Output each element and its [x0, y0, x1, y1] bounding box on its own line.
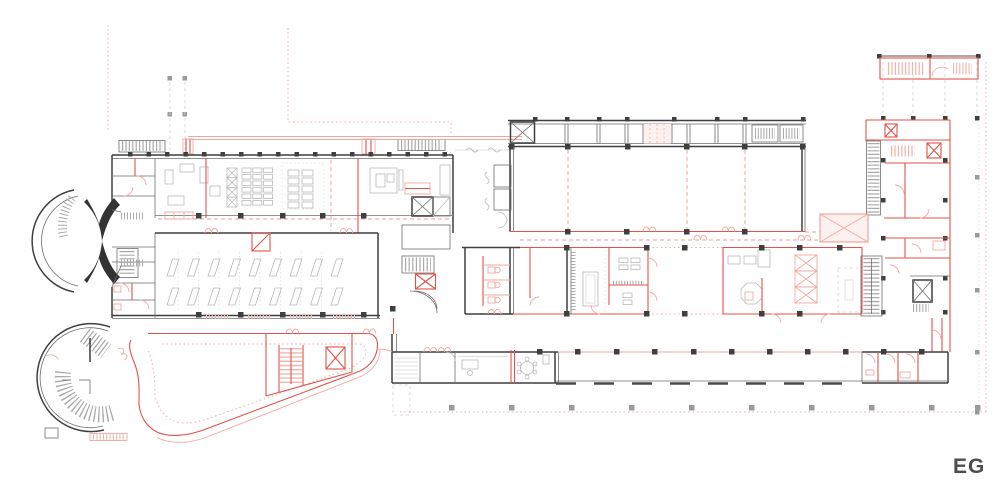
exterior-column-line: [975, 120, 980, 415]
floor-plan-page: EG: [0, 0, 1000, 500]
strip-furniture: [394, 355, 549, 379]
elevator-icon: [913, 280, 932, 302]
studio-hall-desks: [167, 252, 367, 318]
loop-core: [266, 334, 352, 396]
upper-hall-furniture: [165, 158, 403, 233]
hall-west-annex: [485, 165, 511, 228]
south-east-rooms: [862, 352, 948, 383]
canopy-marker: [820, 214, 868, 242]
south-strip: [392, 348, 981, 416]
lounge-room: [723, 245, 770, 317]
toilet-icon: [488, 267, 500, 273]
elevator-icon: [412, 197, 433, 216]
work-table: [583, 272, 598, 306]
floor-label: EG: [953, 455, 985, 478]
stair-icon: [867, 141, 881, 215]
large-table: [370, 168, 397, 193]
curved-stair-icon: [63, 372, 114, 414]
central-core: [390, 165, 450, 352]
toilet-icon: [488, 282, 500, 288]
arcade-columns: [449, 405, 981, 411]
entrance-fan: [32, 190, 144, 292]
east-wing: [820, 54, 981, 415]
toilet-icon: [488, 297, 500, 303]
stair-icon: [85, 335, 106, 351]
wc-room: [483, 256, 510, 314]
spiral-stair-tower: [37, 324, 127, 441]
corridor: [155, 212, 453, 233]
desk-grid-b: [288, 170, 313, 208]
void-marker: [252, 233, 270, 251]
elevator-new-icon: [885, 124, 897, 137]
elevator-icon: [511, 122, 535, 143]
new-build-loop: [118, 329, 394, 442]
elevator-new-icon: [416, 274, 436, 289]
storage-rack: [795, 255, 817, 303]
elevator-new-icon: [927, 143, 941, 158]
stair-icon: [402, 256, 434, 273]
west-wing-rooms: [112, 158, 155, 310]
round-table: [521, 362, 534, 375]
floor-plan-drawing: EG: [0, 0, 1000, 500]
desk: [462, 360, 478, 369]
roof-strip: [877, 54, 981, 79]
sink-icon: [543, 355, 549, 364]
south-room-band: [462, 236, 862, 324]
west-building-block: [112, 137, 522, 319]
desk-grid-a: [242, 168, 273, 205]
elevator-new-icon: [326, 347, 345, 369]
clerestory-mullions: [565, 124, 803, 144]
round-table: [741, 283, 762, 304]
